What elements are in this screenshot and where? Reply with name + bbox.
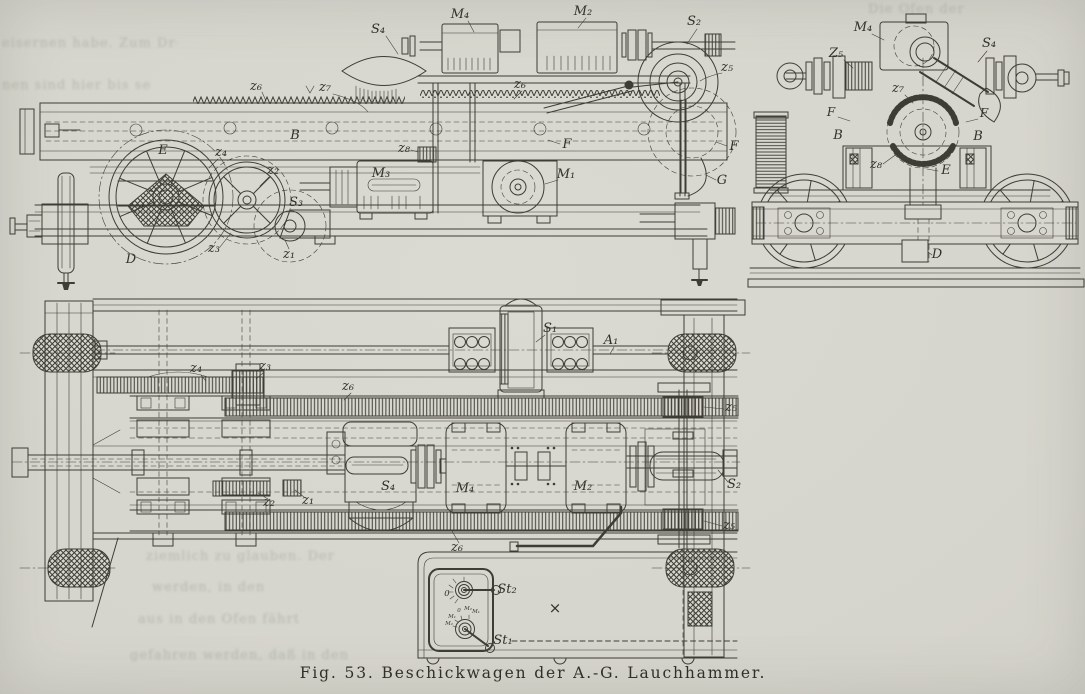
figure-canvas: S₄ M₄ M₂ S₂ z₅ z₆ z₇ z₆ z₈ B E — [0, 0, 1085, 694]
gear-z1-plan — [283, 480, 301, 496]
label-f-left-end: F — [826, 105, 836, 119]
label-g: G — [717, 173, 727, 188]
label-zero-st1: 0 — [457, 608, 461, 614]
bracket-g — [688, 158, 706, 196]
label-z3: z₃ — [207, 241, 220, 256]
intermediate-coupling — [506, 447, 565, 486]
support-jack-left — [58, 173, 74, 290]
label-m4: M₄ — [450, 7, 470, 22]
shaft-a1 — [95, 341, 737, 359]
label-z4: z₄ — [214, 145, 227, 160]
label-z7-end: z₇ — [891, 81, 905, 96]
label-z5-top-plan: z₅ — [724, 400, 738, 415]
label-m2-plan: M₂ — [573, 479, 593, 494]
side-view-labels: S₄ M₄ M₂ S₂ z₅ z₆ z₇ z₆ z₈ B E — [125, 4, 740, 267]
label-m1-switch: M₁ — [471, 609, 480, 615]
x-mark: × — [549, 599, 562, 617]
label-m4-plan: M₄ — [455, 481, 475, 496]
boom — [20, 103, 727, 160]
label-z8-end: z₈ — [869, 157, 883, 172]
gear-z8-side — [418, 147, 436, 162]
label-z6: z₆ — [249, 79, 262, 94]
label-st1: St₁ — [493, 633, 512, 648]
label-z3-plan: z₃ — [258, 359, 271, 374]
label-b: B — [289, 128, 300, 143]
label-s3: S₃ — [289, 195, 303, 210]
label-s4-end: S₄ — [982, 36, 996, 51]
label-m2-switch: M₂ — [444, 621, 453, 627]
motor-m2-side — [537, 22, 617, 73]
label-a1-plan: A₁ — [603, 333, 619, 348]
label-m4-end: M₄ — [853, 20, 873, 35]
label-s4: S₄ — [371, 22, 385, 37]
motor-m4-plan — [440, 423, 506, 513]
end-view: M₄ S₄ Z₅ z₇ F F B B z₈ E D — [748, 14, 1084, 287]
gear-z5-top-plan — [663, 397, 703, 417]
motor-m2-plan — [566, 423, 626, 513]
central-shaft — [12, 448, 740, 477]
label-d: D — [125, 252, 137, 267]
gear-z5-bottom-plan — [663, 509, 703, 529]
label-st2: St₂ — [497, 582, 516, 597]
coupling-box — [500, 30, 520, 52]
label-z2-plan: z₂ — [262, 495, 275, 510]
pulley-m1 — [483, 161, 557, 223]
side-view: S₄ M₄ M₂ S₂ z₅ z₆ z₇ z₆ z₈ B E — [10, 4, 739, 290]
figure-caption: Fig. 53. Beschickwagen der A.-G. Lauchha… — [300, 664, 767, 682]
rail — [748, 268, 1084, 287]
label-z6-top-plan: z₆ — [341, 379, 354, 394]
label-z2: z₂ — [266, 163, 279, 178]
label-m3: M₃ — [371, 166, 391, 181]
label-m2: M₂ — [573, 4, 593, 19]
label-f-right-end: F — [979, 106, 989, 120]
label-zero-st2: 0 — [444, 589, 450, 599]
label-z1-plan: z₁ — [301, 493, 314, 508]
label-m1-switch: M₁ — [447, 614, 456, 620]
label-z1: z₁ — [282, 247, 295, 262]
scanned-book-figure: eisernen habe. Zum Drehen des Sch nen si… — [0, 0, 1085, 694]
label-z6-bottom-plan: z₆ — [450, 540, 463, 555]
support-leg-right — [688, 158, 707, 286]
label-m1: M₁ — [556, 167, 576, 182]
label-s2-plan: S₂ — [727, 477, 741, 492]
rack-z6-rear — [420, 90, 660, 98]
coupling-discs-right — [622, 30, 735, 60]
label-s1-plan: S₁ — [543, 321, 557, 336]
label-s2: S₂ — [687, 14, 701, 29]
label-d-end: D — [931, 247, 943, 262]
wheel-bracket — [128, 174, 204, 226]
big-gear-end — [756, 116, 786, 188]
label-f-right: F — [728, 139, 739, 154]
rack-z6-top-plan — [225, 398, 738, 416]
label-e: E — [157, 143, 168, 158]
label-z5-bottom-plan: z₅ — [722, 518, 736, 533]
bearing-s1 — [498, 299, 544, 398]
label-z6b: z₆ — [513, 77, 526, 92]
label-m2-switch: M₂ — [463, 606, 472, 612]
rack-z6-front — [193, 96, 405, 104]
coupling-discs-plan — [411, 445, 441, 488]
gear-z3-plan — [232, 371, 264, 398]
gear-z5-end — [846, 62, 872, 90]
label-s4-plan: S₄ — [381, 479, 395, 494]
label-z4-plan: z₄ — [189, 361, 202, 376]
label-b-right-end: B — [972, 129, 983, 144]
shovel-arm-end — [920, 58, 1000, 122]
label-b-left-end: B — [832, 128, 843, 143]
label-f-left: F — [561, 137, 572, 152]
label-z5-end: Z₅ — [828, 46, 844, 61]
label-z7: z₇ — [318, 80, 332, 95]
label-z8: z₈ — [397, 141, 411, 156]
label-e-end: E — [940, 163, 951, 178]
rack-z6-bottom-plan — [225, 512, 738, 530]
plan-view: z₄ z₃ z₆ z₆ z₅ z₅ S₁ A₁ S₄ M₄ M₂ S₂ — [12, 299, 750, 664]
axle-beam — [752, 202, 1078, 244]
